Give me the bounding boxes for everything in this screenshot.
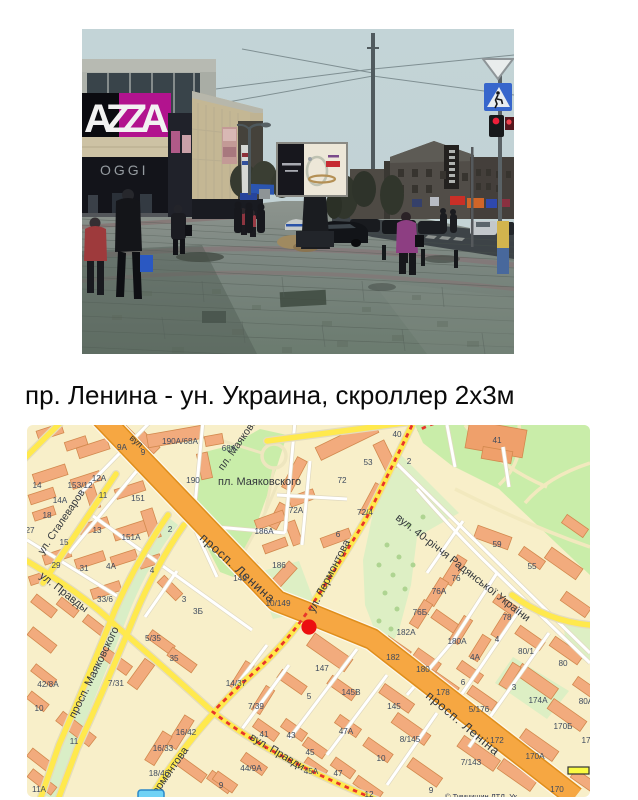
svg-text:47А: 47А <box>339 727 354 736</box>
svg-text:16/33: 16/33 <box>153 744 174 753</box>
svg-text:80: 80 <box>558 659 568 668</box>
svg-text:174А: 174А <box>528 696 548 705</box>
svg-text:72/4: 72/4 <box>357 508 373 517</box>
svg-text:180А: 180А <box>447 637 467 646</box>
svg-text:172: 172 <box>490 736 504 745</box>
svg-text:15: 15 <box>59 538 69 547</box>
svg-text:10: 10 <box>376 754 386 763</box>
svg-text:9А: 9А <box>117 443 128 452</box>
svg-text:76Б.: 76Б. <box>413 608 430 617</box>
svg-text:4: 4 <box>150 566 155 575</box>
svg-text:9: 9 <box>429 786 434 795</box>
svg-text:13: 13 <box>92 526 102 535</box>
svg-text:42/8А: 42/8А <box>37 680 59 689</box>
svg-text:76: 76 <box>451 574 461 583</box>
svg-text:72: 72 <box>337 476 347 485</box>
svg-text:190: 190 <box>186 476 200 485</box>
svg-text:41: 41 <box>492 436 502 445</box>
svg-text:4: 4 <box>495 635 500 644</box>
svg-text:45: 45 <box>305 748 315 757</box>
svg-text:178: 178 <box>436 688 450 697</box>
svg-text:6: 6 <box>336 530 341 539</box>
svg-text:80А: 80А <box>579 697 590 706</box>
svg-text:3: 3 <box>182 595 187 604</box>
svg-text:186: 186 <box>272 561 286 570</box>
svg-text:170: 170 <box>550 785 564 794</box>
svg-text:14: 14 <box>32 481 42 490</box>
svg-text:3: 3 <box>512 683 517 692</box>
svg-text:OGGI: OGGI <box>100 162 149 178</box>
svg-text:31: 31 <box>79 564 89 573</box>
svg-text:47: 47 <box>333 769 343 778</box>
svg-text:170А: 170А <box>525 752 545 761</box>
svg-text:27: 27 <box>27 526 35 535</box>
svg-text:151А: 151А <box>121 533 141 542</box>
svg-text:72А: 72А <box>289 506 304 515</box>
svg-text:11А: 11А <box>32 785 46 794</box>
svg-text:59: 59 <box>492 540 502 549</box>
svg-text:35: 35 <box>169 654 179 663</box>
svg-text:© Тимчишин ЛТД, Ук: © Тимчишин ЛТД, Ук <box>445 792 518 797</box>
svg-text:17: 17 <box>581 736 590 745</box>
svg-text:40: 40 <box>392 430 402 439</box>
svg-text:55: 55 <box>527 562 537 571</box>
svg-text:170Б: 170Б <box>553 722 572 731</box>
svg-text:68А: 68А <box>222 444 237 453</box>
svg-text:16/42: 16/42 <box>176 728 197 737</box>
svg-text:18/46: 18/46 <box>149 769 170 778</box>
svg-text:пл. Маяковского: пл. Маяковского <box>218 476 301 488</box>
svg-text:147: 147 <box>315 664 329 673</box>
svg-text:7/143: 7/143 <box>461 758 482 767</box>
svg-text:7/31: 7/31 <box>108 679 124 688</box>
svg-text:33/6: 33/6 <box>97 595 113 604</box>
svg-text:180: 180 <box>416 665 430 674</box>
svg-text:3Б: 3Б <box>193 607 203 616</box>
svg-text:12А: 12А <box>92 474 107 483</box>
svg-text:45А: 45А <box>304 767 319 776</box>
svg-text:5/35: 5/35 <box>145 634 161 643</box>
svg-text:153/12: 153/12 <box>67 481 92 490</box>
svg-text:11: 11 <box>70 737 79 746</box>
svg-text:7/39: 7/39 <box>248 702 264 711</box>
svg-text:4А: 4А <box>470 653 481 662</box>
svg-text:14/37: 14/37 <box>226 679 247 688</box>
svg-text:9: 9 <box>141 448 146 457</box>
svg-text:18: 18 <box>42 511 52 520</box>
svg-text:145: 145 <box>387 702 401 711</box>
svg-text:182А: 182А <box>396 628 416 637</box>
svg-text:182: 182 <box>386 653 400 662</box>
svg-text:12: 12 <box>364 790 374 797</box>
svg-text:8/145: 8/145 <box>400 735 421 744</box>
svg-text:10: 10 <box>34 704 44 713</box>
svg-text:5: 5 <box>307 692 312 701</box>
svg-text:9: 9 <box>219 781 224 790</box>
svg-text:43: 43 <box>286 731 296 740</box>
svg-text:29: 29 <box>51 561 61 570</box>
svg-text:80/1: 80/1 <box>518 647 534 656</box>
svg-text:41: 41 <box>259 730 269 739</box>
svg-text:76А: 76А <box>432 587 447 596</box>
svg-text:44/9А: 44/9А <box>240 764 262 773</box>
svg-text:2: 2 <box>168 525 173 534</box>
svg-text:53: 53 <box>363 458 373 467</box>
svg-text:14А: 14А <box>53 496 68 505</box>
svg-text:6: 6 <box>461 678 466 687</box>
svg-text:2: 2 <box>407 457 412 466</box>
svg-text:151: 151 <box>131 494 145 503</box>
svg-text:145В: 145В <box>341 688 361 697</box>
svg-text:149: 149 <box>233 574 247 583</box>
svg-text:AZZA: AZZA <box>84 97 169 141</box>
svg-text:5/176: 5/176 <box>469 705 490 714</box>
svg-text:10/149: 10/149 <box>265 599 290 608</box>
svg-text:190А/68А: 190А/68А <box>162 437 199 446</box>
svg-text:78: 78 <box>502 613 512 622</box>
svg-text:4А: 4А <box>106 562 117 571</box>
svg-text:186А: 186А <box>254 527 274 536</box>
svg-text:11: 11 <box>99 491 108 500</box>
